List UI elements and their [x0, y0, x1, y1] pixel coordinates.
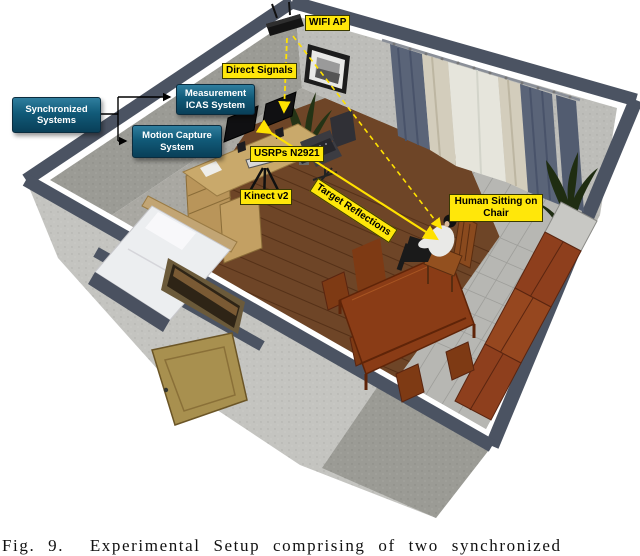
figure-canvas: Synchronized Systems Measurement ICAS Sy…: [0, 0, 640, 550]
room-scene: [0, 0, 640, 550]
motion-capture-system-box: Motion Capture System: [132, 125, 222, 158]
door-handle: [164, 388, 168, 392]
label-human-sitting: Human Sitting on Chair: [449, 194, 543, 222]
sheer-curtain: [448, 62, 506, 182]
figure-caption: Fig. 9. Experimental Setup comprising of…: [2, 536, 640, 556]
label-wifi-ap: WIFI AP: [305, 15, 350, 31]
measurement-icas-system-box: Measurement ICAS System: [176, 84, 255, 115]
label-kinect: Kinect v2: [240, 189, 292, 205]
synchronized-systems-box: Synchronized Systems: [12, 97, 101, 133]
label-direct-signals: Direct Signals: [222, 63, 297, 79]
label-usrps: USRPs N2921: [250, 146, 324, 162]
